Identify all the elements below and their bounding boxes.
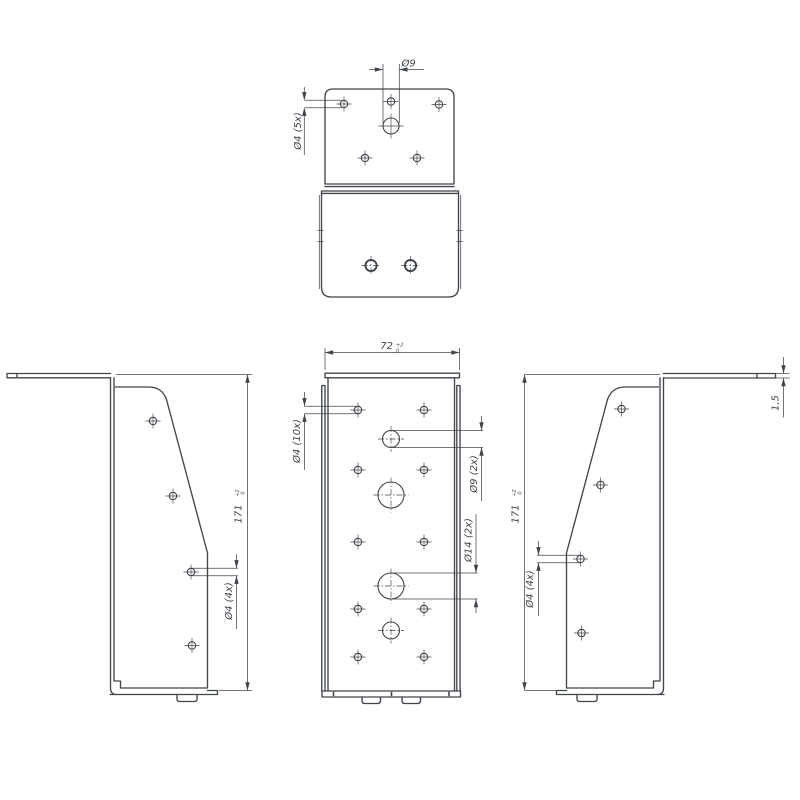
hole-d4 — [573, 552, 588, 567]
bottom-tab — [577, 695, 597, 702]
dim-height-tol-lower: 0 — [241, 491, 247, 494]
hole-d4 — [417, 463, 432, 478]
hole-d9 — [379, 114, 404, 139]
hole-d4 — [184, 565, 199, 580]
dimension-d4-5x: Ø4 (5x) — [292, 87, 342, 155]
left-side-plate — [116, 387, 208, 688]
hole-d14 — [374, 478, 409, 513]
top-flange-outline — [322, 191, 459, 297]
hole-d4 — [417, 602, 432, 617]
hole-d4 — [410, 151, 425, 166]
dimension-d4-4x: Ø4 (4x) — [524, 541, 581, 616]
hole-d4 — [432, 97, 447, 112]
left-top-flange — [7, 374, 111, 378]
dim-label-d9-2x: Ø9 (2x) — [468, 455, 480, 494]
front-top-fold — [325, 373, 460, 378]
dim-label-height: 171 — [511, 504, 522, 523]
bottom-tab — [177, 695, 197, 702]
dimension-d14-2x: Ø14 (2x) — [391, 514, 478, 613]
bottom-tab — [402, 697, 421, 704]
hole-d4 — [185, 638, 200, 653]
hole-d4 — [166, 489, 181, 504]
hole-d4 — [351, 650, 366, 665]
hole-d4 — [417, 650, 432, 665]
drawing-sheet: Ø9 Ø4 (5x) — [0, 0, 800, 800]
dim-label-d4-5x: Ø4 (5x) — [292, 112, 304, 151]
hole-d4 — [574, 626, 589, 641]
hole-d4 — [593, 478, 608, 493]
hole-flange — [362, 256, 381, 275]
dim-label-d4-10x: Ø4 (10x) — [291, 419, 303, 464]
hole-d4 — [384, 94, 399, 109]
dimension-width-72: 72 +2 0 — [325, 341, 460, 370]
dim-height-tol-lower: 0 — [518, 491, 524, 494]
dimension-thickness: 1,5 — [771, 357, 784, 418]
right-web — [654, 378, 664, 695]
dim-label-d4-4x: Ø4 (4x) — [524, 570, 536, 609]
hole-d9 — [378, 426, 404, 452]
right-side-plate — [567, 387, 659, 688]
view-front: 72 +2 0 Ø4 (10x) Ø9 (2x) Ø14 (2x) — [291, 341, 483, 704]
dimension-d4-4x: Ø4 (4x) — [191, 554, 238, 629]
hole-d4 — [351, 602, 366, 617]
dimension-height-171: 171 +2 0 — [116, 375, 252, 691]
bottom-tab — [362, 697, 381, 704]
dim-label-d9: Ø9 — [401, 58, 416, 70]
hole-d4 — [614, 402, 629, 417]
top-back-plate-outline — [325, 89, 454, 184]
hole-d9 — [378, 618, 404, 644]
dim-label-d14-2x: Ø14 (2x) — [463, 518, 475, 563]
hole-d4 — [337, 97, 352, 112]
right-top-flange — [664, 374, 776, 379]
left-bottom-flange — [110, 691, 218, 695]
hole-d4 — [146, 414, 161, 429]
hole-d14 — [374, 569, 409, 604]
hole-d4 — [358, 151, 373, 166]
hole-d4 — [351, 403, 366, 418]
view-left: Ø4 (4x) 171 +2 0 — [7, 374, 252, 702]
dim-label-d4-4x: Ø4 (4x) — [223, 582, 235, 621]
left-web — [111, 378, 121, 695]
dimension-d9-2x: Ø9 (2x) — [391, 416, 483, 501]
hole-d4 — [351, 535, 366, 550]
view-top: Ø9 Ø4 (5x) — [292, 58, 463, 298]
hole-d4 — [417, 535, 432, 550]
dim-label-height: 171 — [234, 504, 245, 523]
dim-width-tol-lower: 0 — [396, 349, 399, 355]
dimension-height-171: 171 +2 0 — [511, 375, 661, 691]
engineering-drawing: Ø9 Ø4 (5x) — [0, 0, 800, 800]
hole-d4 — [417, 403, 432, 418]
dim-label-thickness: 1,5 — [771, 395, 782, 411]
hole-flange — [401, 256, 420, 275]
hole-d4 — [351, 463, 366, 478]
view-right: 1,5 Ø4 (4x) 171 +2 0 — [511, 357, 790, 702]
dimension-d9: Ø9 — [369, 58, 424, 124]
dim-label-width: 72 — [380, 341, 393, 352]
right-bottom-flange — [557, 691, 665, 695]
